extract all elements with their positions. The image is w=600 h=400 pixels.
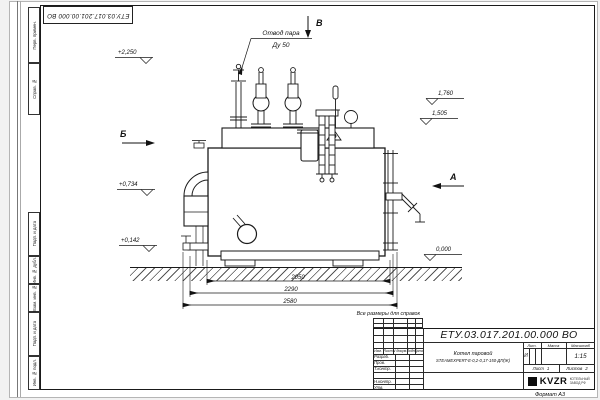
- tb-line: [393, 318, 394, 328]
- right-fittings: [383, 150, 425, 250]
- tb-line: [529, 348, 530, 364]
- elevation-0142: +0,142: [121, 238, 140, 244]
- callout-line2: Ду 50: [272, 42, 290, 49]
- format-label: Формат А3: [520, 391, 580, 398]
- elevation-1760: 1,760: [438, 91, 454, 97]
- kvzr-logo-icon: [528, 377, 537, 386]
- kvzr-logo-text: KVZR: [540, 376, 567, 387]
- burner-assembly: [181, 141, 208, 267]
- steam-platform: [222, 128, 374, 148]
- view-marker-v: В: [316, 18, 323, 28]
- steam-outlet-callout: Отвод пара Ду 50: [240, 29, 312, 74]
- safety-valve-1: [251, 68, 271, 127]
- view-marker-a: А: [449, 172, 457, 182]
- tb-col-data: Дата: [415, 348, 423, 354]
- tb-sheets: Листов2: [559, 364, 595, 372]
- elevation-0000: 0,000: [436, 247, 452, 253]
- tb-row-utv: Утв.: [374, 384, 395, 390]
- tb-sheet: Лист1: [523, 364, 559, 372]
- drawing-page: ЕТУ.03.017.201.00.000 ВО Перв. примен. С…: [0, 0, 600, 400]
- elevation-2250: +2,250: [118, 50, 137, 56]
- reference-note-text: Все размеры для справок: [357, 311, 420, 317]
- tb-row-tkontr: Т.контр.: [374, 366, 395, 372]
- blowdown-valve: [386, 193, 425, 222]
- tb-doc-number: ЕТУ.03.017.201.00.000 ВО: [423, 328, 595, 342]
- boiler-body: [208, 148, 385, 266]
- dim-2290: 2290: [283, 287, 298, 293]
- tb-line: [409, 354, 410, 391]
- tb-line: [383, 318, 384, 328]
- tb-company: KVZR КОТЕЛЬНЫЙ ЗАВОД РФ: [523, 372, 595, 390]
- tb-massa-header: Масса: [541, 342, 566, 348]
- tb-name: Котел паровой STEAMEXPERT-Е-0,2-0,17-150…: [423, 342, 523, 372]
- kvzr-sub2: ЗАВОД РФ: [570, 381, 590, 385]
- dimensions: 2050 2290 2580: [183, 252, 397, 309]
- tb-col-podp: Подп.: [407, 348, 415, 354]
- tb-scale-value: 1:15: [566, 348, 595, 364]
- nozzle: [301, 130, 318, 161]
- callout-line1: Отвод пара: [262, 29, 300, 37]
- dim-2050: 2050: [290, 275, 305, 281]
- tb-lit-value: И: [523, 348, 529, 364]
- tb-line: [395, 354, 396, 391]
- view-marker-b: Б: [120, 129, 127, 139]
- tb-line: [535, 348, 536, 364]
- tb-col-doc: N докум.: [393, 348, 407, 354]
- tb-line: [373, 372, 423, 373]
- elevation-0734: +0,734: [119, 182, 138, 188]
- dim-2580: 2580: [282, 299, 297, 305]
- elevation-1505: 1,505: [432, 111, 448, 117]
- tb-name-line2: STEAMEXPERT-Е-0,2-0,17-150-ДП(Ж): [436, 358, 510, 363]
- safety-valve-2: [283, 68, 303, 127]
- reference-note: Все размеры для справок: [330, 310, 420, 318]
- tb-line: [415, 318, 416, 328]
- tb-line: [407, 318, 408, 328]
- tb-name-line1: Котел паровой: [454, 351, 493, 357]
- manhole: [238, 225, 257, 244]
